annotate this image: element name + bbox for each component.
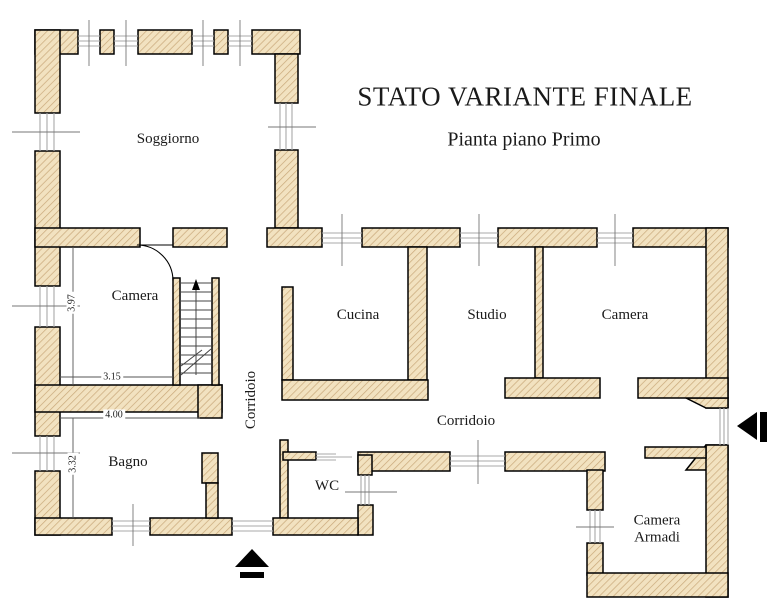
dimension-camera-width: 3.15 (101, 372, 123, 383)
side-entrance-arrow-icon (737, 412, 767, 442)
room-label-soggiorno: Soggiorno (137, 131, 200, 148)
room-label-camera-armadi-line2: Armadi (634, 529, 681, 546)
room-label-camera-e: Camera (602, 307, 649, 324)
floor-plan-page: STATO VARIANTE FINALE Pianta piano Primo… (0, 0, 779, 600)
room-label-camera-armadi: Camera Armadi (634, 513, 681, 546)
room-label-cucina: Cucina (337, 307, 380, 324)
room-label-camera-nw: Camera (112, 288, 159, 305)
staircase (180, 279, 212, 375)
room-label-bagno: Bagno (108, 454, 147, 471)
room-label-studio: Studio (467, 307, 506, 324)
main-entrance-arrow-icon (235, 549, 269, 578)
room-label-corridoio-horizontal: Corridoio (437, 413, 495, 430)
dimension-bagno-height: 3.32 (68, 453, 79, 475)
drawing-subtitle: Pianta piano Primo (447, 129, 600, 152)
room-label-camera-armadi-line1: Camera (634, 513, 681, 530)
dimension-camera-height: 3.97 (67, 292, 78, 314)
stairs-up-arrow-icon (192, 279, 200, 290)
room-label-corridoio-vertical: Corridoio (243, 371, 260, 429)
door-arcs (137, 245, 173, 281)
camera-door-arc (137, 245, 173, 281)
dimension-bagno-width: 4.00 (103, 410, 125, 421)
drawing-title: STATO VARIANTE FINALE (357, 82, 692, 113)
room-label-wc: WC (315, 478, 339, 495)
